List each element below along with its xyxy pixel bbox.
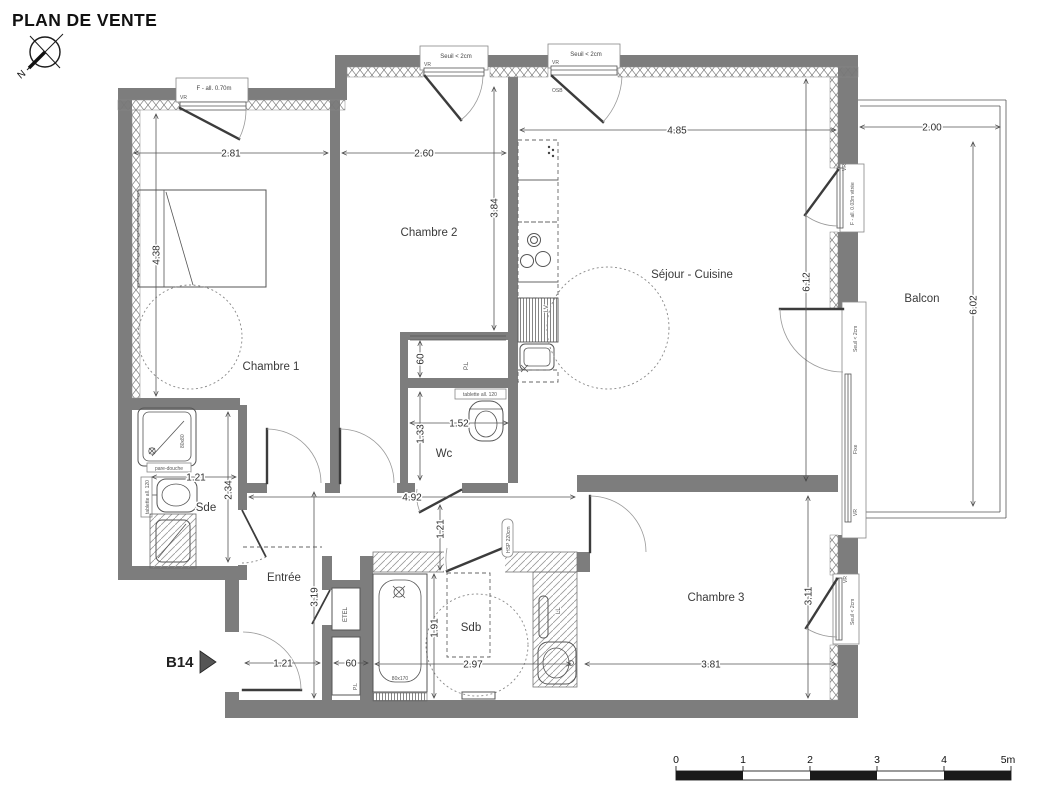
vr-label: VR bbox=[843, 576, 849, 583]
svg-text:1.91: 1.91 bbox=[430, 618, 441, 638]
hsp-capsule: HSP 220cm bbox=[502, 519, 513, 557]
svg-text:4.38: 4.38 bbox=[152, 245, 163, 265]
svg-text:3.11: 3.11 bbox=[804, 586, 815, 605]
dim-chambre1-width: 2.81 bbox=[134, 149, 328, 160]
door-chambre3 bbox=[590, 496, 646, 552]
scale-bar: 0 1 2 3 4 5m bbox=[673, 754, 1015, 780]
sde-washbasin bbox=[151, 479, 197, 512]
floor-plan-drawing: PLAN DE VENTE N bbox=[0, 0, 1044, 800]
bathtub: 80x170 bbox=[373, 574, 427, 701]
dim-pl-depth: 60 bbox=[416, 341, 427, 377]
dim-chambre2-width: 2.60 bbox=[342, 149, 506, 160]
dim-balcon-width: 2.00 bbox=[860, 123, 1000, 134]
svg-text:2.97: 2.97 bbox=[463, 660, 483, 671]
dim-wc-height: 1.33 bbox=[416, 392, 427, 480]
dim-sejour-height: 6.12 bbox=[802, 79, 813, 481]
vr-label: VR bbox=[180, 95, 187, 101]
scale-tick-4: 4 bbox=[941, 754, 947, 766]
vr-label: VR bbox=[552, 60, 559, 66]
svg-text:2.34: 2.34 bbox=[224, 480, 235, 500]
dim-sejour-width: 4.85 bbox=[520, 126, 836, 137]
svg-text:60: 60 bbox=[416, 353, 427, 365]
door-wc bbox=[417, 489, 461, 512]
balcony-door: Seuil < 2cm Fixe VR bbox=[780, 302, 866, 538]
svg-text:pare-douche: pare-douche bbox=[155, 466, 183, 472]
room-label-wc: Wc bbox=[436, 448, 453, 460]
dim-entree-height: 3.19 bbox=[310, 492, 321, 698]
dim-chambre1-height: 4.38 bbox=[152, 114, 163, 396]
turning-circle-sejour bbox=[547, 267, 669, 389]
room-label-sdb: Sdb bbox=[461, 622, 481, 634]
floor-plan-page: PLAN DE VENTE N bbox=[0, 0, 1044, 800]
sde-shelf-label: tablette all. 120 bbox=[141, 477, 152, 517]
dim-sde-height: 2.34 bbox=[224, 412, 235, 562]
fixed-pane-label: Fixe bbox=[853, 444, 859, 454]
window-label: Seuil < 2cm bbox=[570, 52, 602, 58]
dim-balcon-height: 6.02 bbox=[969, 142, 980, 506]
door-chambre2 bbox=[340, 429, 394, 483]
dim-chambre3-height: 3.11 bbox=[804, 496, 815, 698]
svg-text:2.81: 2.81 bbox=[221, 149, 241, 160]
shower: 80x80 bbox=[138, 408, 196, 466]
room-label-chambre2: Chambre 2 bbox=[401, 227, 458, 239]
room-label-entree: Entrée bbox=[267, 572, 301, 584]
svg-text:tablette all. 120: tablette all. 120 bbox=[463, 392, 497, 398]
door-sde bbox=[242, 510, 266, 563]
unit-marker: B14 bbox=[166, 651, 216, 673]
shower-screen-label: pare-douche bbox=[147, 463, 191, 472]
bed-chambre1 bbox=[138, 190, 266, 287]
turning-circle-sdb bbox=[426, 594, 528, 696]
svg-text:1.21: 1.21 bbox=[186, 473, 206, 484]
svg-text:3.84: 3.84 bbox=[490, 198, 501, 218]
window-chambre1: F - all. 0.70m VR bbox=[176, 78, 248, 139]
svg-text:HSP 220cm: HSP 220cm bbox=[506, 526, 512, 553]
svg-text:2.00: 2.00 bbox=[922, 123, 942, 134]
door-chambre1 bbox=[267, 429, 321, 483]
dim-hall-length: 4.92 bbox=[249, 493, 575, 504]
dishwasher bbox=[518, 298, 558, 342]
page-title: PLAN DE VENTE bbox=[12, 10, 157, 30]
etel-label: ETEL bbox=[343, 606, 349, 622]
vr-label: VR bbox=[842, 164, 848, 171]
scale-tick-5: 5m bbox=[1001, 754, 1016, 766]
svg-text:4.92: 4.92 bbox=[402, 493, 422, 504]
vr-label: VR bbox=[853, 509, 859, 516]
svg-text:60: 60 bbox=[345, 659, 357, 670]
vr-label: VR bbox=[424, 62, 431, 68]
room-label-chambre3: Chambre 3 bbox=[688, 592, 745, 604]
unit-id-label: B14 bbox=[166, 654, 194, 671]
compass-icon: N bbox=[16, 34, 63, 81]
window-label: F - all. 0.70m bbox=[196, 86, 231, 92]
svg-text:tablette all. 120: tablette all. 120 bbox=[145, 480, 151, 514]
scale-tick-2: 2 bbox=[807, 754, 813, 766]
scale-tick-0: 0 bbox=[673, 754, 679, 766]
svg-text:3.81: 3.81 bbox=[701, 660, 721, 671]
room-label-balcon: Balcon bbox=[904, 293, 939, 305]
window-chambre2: Seuil < 2cm VR bbox=[420, 46, 488, 120]
svg-text:1.21: 1.21 bbox=[273, 659, 293, 670]
washer-label: LL bbox=[556, 607, 562, 614]
window-label: Seuil < 2cm bbox=[440, 54, 472, 60]
tub-size-label: 80x170 bbox=[392, 676, 409, 682]
threshold-label: Seuil < 2cm bbox=[853, 326, 859, 352]
compass-north-label: N bbox=[16, 68, 29, 81]
pl-label: P.L bbox=[353, 683, 359, 690]
etel-closet: ETEL bbox=[332, 588, 360, 630]
osb-label: OSB bbox=[552, 88, 563, 94]
room-label-sde: Sde bbox=[196, 502, 216, 514]
svg-text:1.21: 1.21 bbox=[436, 519, 447, 539]
window-label: Seuil < 2cm bbox=[850, 599, 856, 625]
window-sejour-top: Seuil < 2cm VR OSB bbox=[548, 44, 622, 122]
dim-sdb-height: 1.91 bbox=[430, 574, 441, 698]
balcony-railing bbox=[858, 100, 1006, 518]
svg-text:6.12: 6.12 bbox=[802, 272, 813, 292]
dim-entree-width: 1.21 bbox=[245, 659, 320, 670]
turning-circle-chambre1 bbox=[138, 285, 242, 389]
entrance-arrow-icon bbox=[200, 651, 216, 673]
window-label: F - all. 0.03m vitrée bbox=[850, 182, 856, 225]
svg-text:1.33: 1.33 bbox=[416, 424, 427, 444]
sdb-soffit-hatch bbox=[373, 551, 577, 573]
sde-appliance bbox=[150, 514, 196, 568]
scale-tick-3: 3 bbox=[874, 754, 880, 766]
kitchen-units: LV bbox=[518, 140, 558, 382]
washer-zone: LL bbox=[533, 572, 577, 687]
shower-size-label: 80x80 bbox=[180, 434, 186, 448]
window-sejour-east: VR F - all. 0.03m vitrée bbox=[805, 164, 864, 232]
svg-text:2.60: 2.60 bbox=[414, 149, 434, 160]
scale-tick-1: 1 bbox=[740, 754, 746, 766]
pl-label: P.L bbox=[464, 361, 470, 370]
room-label-sejour: Séjour - Cuisine bbox=[651, 269, 733, 281]
toilet bbox=[469, 401, 503, 441]
sdb-evolutive-zone bbox=[447, 573, 490, 657]
svg-text:3.19: 3.19 bbox=[310, 587, 321, 607]
svg-text:4.85: 4.85 bbox=[667, 126, 687, 137]
window-chambre3: VR Seuil < 2cm bbox=[806, 574, 859, 644]
dim-chambre2-height: 3.84 bbox=[490, 87, 501, 330]
svg-text:1.52: 1.52 bbox=[449, 419, 469, 430]
sdb-mat bbox=[462, 692, 495, 699]
dim-chambre3-width: 3.81 bbox=[585, 660, 836, 671]
svg-text:6.02: 6.02 bbox=[969, 295, 980, 315]
room-label-chambre1: Chambre 1 bbox=[243, 361, 300, 373]
wc-shelf-label: tablette all. 120 bbox=[455, 389, 506, 399]
